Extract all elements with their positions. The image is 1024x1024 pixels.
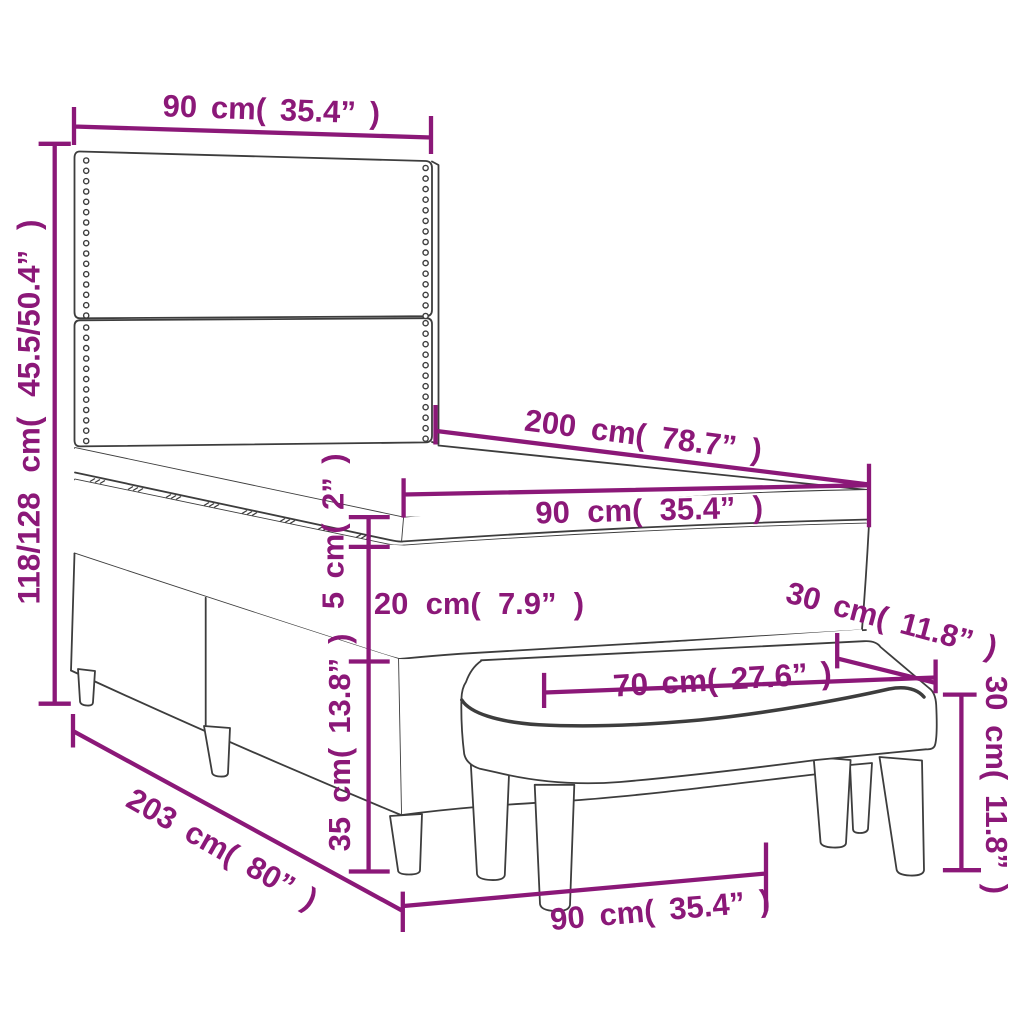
svg-text:30 cm( 11.8” ): 30 cm( 11.8” ): [979, 676, 1014, 894]
svg-text:118/128 cm( 45.5/50.4” ): 118/128 cm( 45.5/50.4” ): [11, 219, 47, 604]
svg-text:5 cm( 2” ): 5 cm( 2” ): [316, 453, 351, 609]
svg-text:90 cm( 35.4” ): 90 cm( 35.4” ): [535, 490, 764, 531]
svg-text:35 cm( 13.8” ): 35 cm( 13.8” ): [322, 634, 357, 852]
svg-text:20 cm( 7.9” ): 20 cm( 7.9” ): [374, 586, 584, 621]
